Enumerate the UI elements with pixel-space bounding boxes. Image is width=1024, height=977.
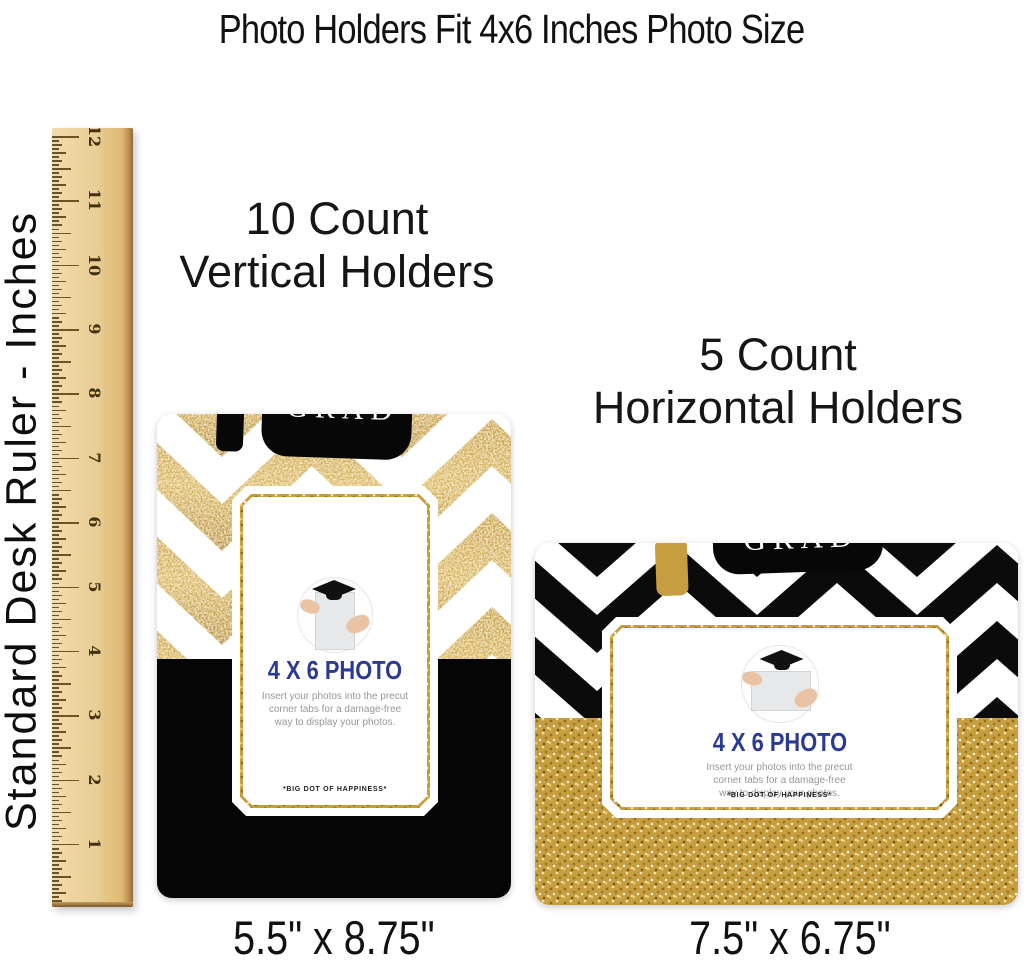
ruler-axis-label: Standard Desk Ruler - Inches — [0, 135, 48, 907]
grad-cap-icon-vertical: congrats GRAD — [157, 414, 511, 540]
page-title: Photo Holders Fit 4x6 Inches Photo Size — [0, 6, 1024, 53]
horizontal-holder-heading-line2: Horizontal Holders — [578, 381, 978, 434]
brand-text: *BIG DOT OF HAPPINESS* — [243, 786, 427, 793]
ruler-number: 10 — [86, 252, 104, 278]
ruler-number: 9 — [86, 316, 104, 342]
ruler-number: 11 — [86, 187, 104, 213]
vertical-holder-heading: 10 Count Vertical Holders — [157, 192, 517, 298]
ruler-number: 5 — [86, 574, 104, 600]
horizontal-holder-dimensions: 7.5" x 6.75" — [590, 910, 990, 965]
ruler-number: 6 — [86, 509, 104, 535]
page-title-text: Photo Holders Fit 4x6 Inches Photo Size — [219, 6, 805, 53]
photo-size-label: 4 X 6 PHOTO — [700, 727, 860, 758]
product-infographic: Photo Holders Fit 4x6 Inches Photo Size … — [0, 0, 1024, 977]
vertical-holder-card: 4 X 6 PHOTO Insert your photos into the … — [157, 414, 511, 898]
ruler-number: 4 — [86, 638, 104, 664]
wooden-ruler: 121110987654321 — [52, 128, 133, 907]
mini-grad-cap-base — [326, 590, 342, 600]
ruler-number: 12 — [86, 128, 104, 149]
photo-size-label: 4 X 6 PHOTO — [255, 655, 415, 686]
insert-instructions: Insert your photos into the precut corne… — [262, 690, 408, 730]
ruler-number: 8 — [86, 380, 104, 406]
horizontal-holder-card: 4 X 6 PHOTO Insert your photos into the … — [535, 543, 1018, 905]
vertical-frame-inner: 4 X 6 PHOTO Insert your photos into the … — [243, 497, 427, 805]
tassel-icon — [216, 414, 245, 452]
grad-cap-icon-horizontal: congrats GRAD — [535, 543, 1018, 671]
vertical-holder-heading-line2: Vertical Holders — [157, 245, 517, 298]
photo-insert-illustration — [297, 577, 373, 653]
ruler-number: 2 — [86, 767, 104, 793]
vertical-holder-dimensions: 5.5" x 8.75" — [154, 910, 514, 965]
ruler-number: 7 — [86, 445, 104, 471]
vertical-holder-heading-line1: 10 Count — [157, 192, 517, 245]
horizontal-holder-heading-line1: 5 Count — [578, 328, 978, 381]
horizontal-holder-heading: 5 Count Horizontal Holders — [578, 328, 978, 434]
tassel-icon — [655, 543, 689, 596]
ruler-number: 3 — [86, 702, 104, 728]
brand-text: *BIG DOT OF HAPPINESS* — [613, 792, 946, 799]
gold-frame-border: 4 X 6 PHOTO Insert your photos into the … — [240, 494, 430, 808]
ruler-number: 1 — [86, 831, 104, 857]
ruler-numbers: 121110987654321 — [52, 128, 133, 907]
